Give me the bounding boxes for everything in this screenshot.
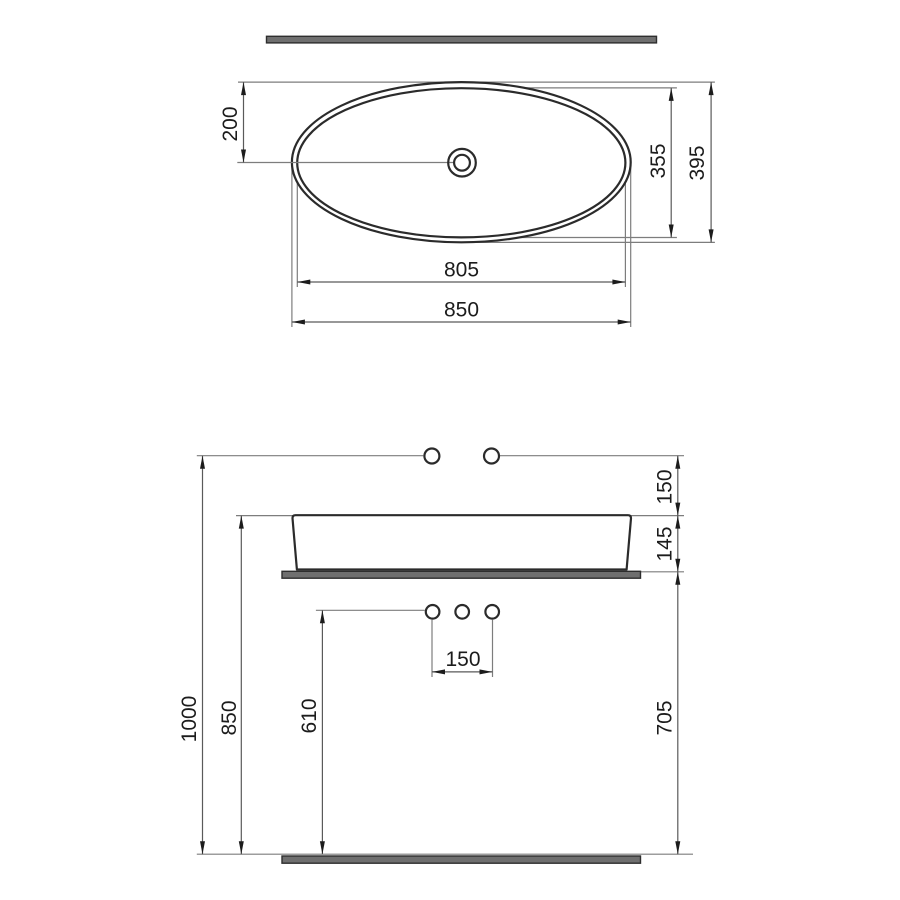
svg-text:150: 150 [445, 648, 480, 671]
svg-text:395: 395 [686, 145, 709, 180]
svg-text:145: 145 [654, 526, 677, 561]
svg-text:355: 355 [647, 143, 670, 178]
svg-text:200: 200 [219, 106, 242, 141]
svg-text:850: 850 [218, 700, 241, 735]
svg-text:1000: 1000 [178, 696, 201, 743]
svg-text:150: 150 [654, 469, 677, 504]
svg-text:705: 705 [654, 700, 677, 735]
svg-text:610: 610 [298, 698, 321, 733]
svg-text:850: 850 [444, 299, 479, 322]
svg-text:805: 805 [444, 259, 479, 282]
